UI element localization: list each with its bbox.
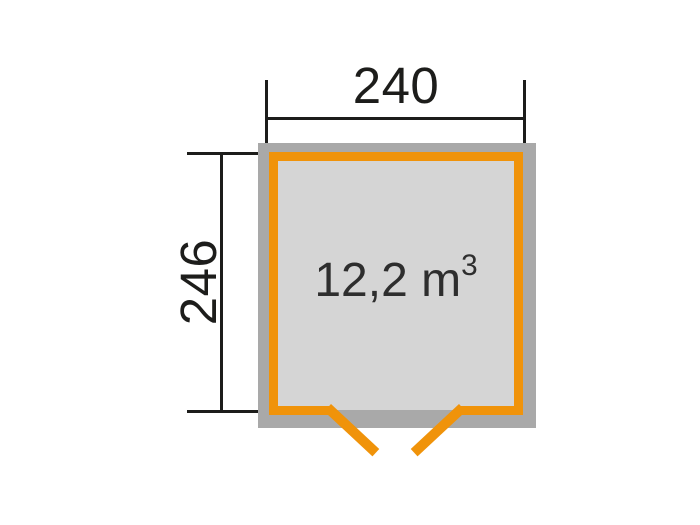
volume-label: 12,2 m3: [314, 257, 477, 311]
depth-dimension-label: 246: [173, 152, 225, 412]
door-opening: [332, 405, 458, 415]
depth-dimension-tick-top: [187, 152, 261, 155]
volume-value: 12,2 m: [314, 254, 461, 307]
width-dimension-tick-left: [265, 80, 268, 147]
depth-dimension-line: [220, 152, 223, 413]
width-dimension-tick-right: [523, 80, 526, 147]
volume-superscript: 3: [461, 249, 478, 282]
floor-plan-diagram: 240 246 12,2 m3: [0, 0, 700, 525]
width-dimension-line: [266, 117, 526, 120]
shed-inner-wall-outline: 12,2 m3: [269, 152, 523, 415]
width-dimension-label: 240: [266, 60, 526, 111]
depth-dimension-tick-bottom: [187, 410, 261, 413]
shed-outer-wall: 12,2 m3: [258, 143, 536, 428]
shed-floor-area: 12,2 m3: [278, 161, 514, 406]
